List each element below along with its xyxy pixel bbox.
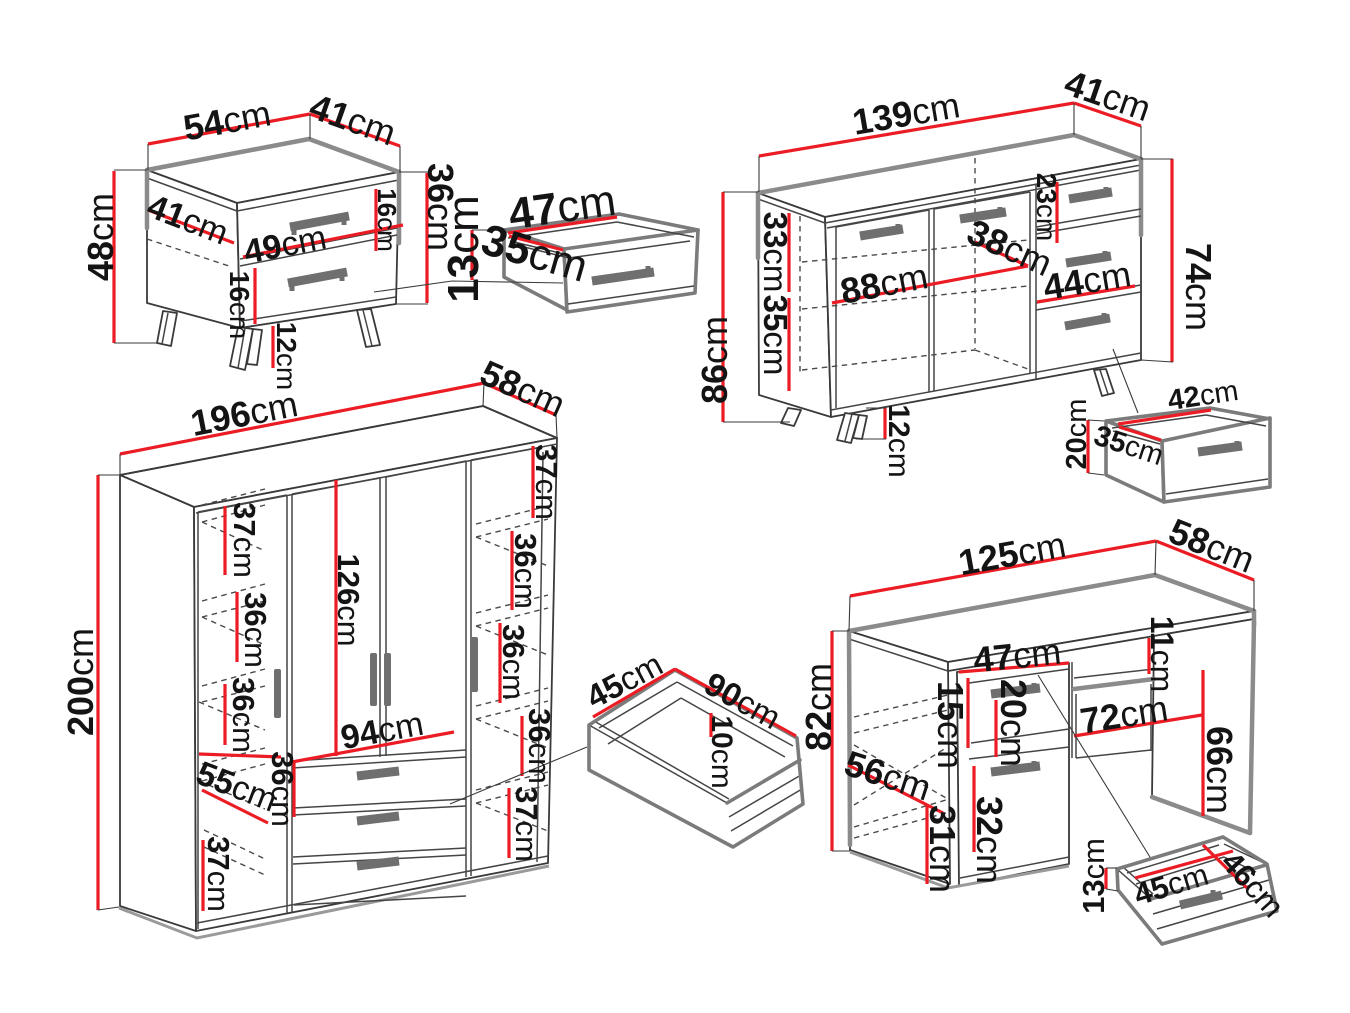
svg-text:36cm: 36cm [522,708,557,784]
svg-text:13cm: 13cm [1076,838,1111,914]
svg-text:16cm: 16cm [372,188,402,252]
svg-text:48cm: 48cm [80,193,121,281]
svg-text:37cm: 37cm [529,444,564,520]
svg-text:20cm: 20cm [993,679,1034,767]
svg-text:126cm: 126cm [331,553,366,646]
svg-text:35cm: 35cm [757,295,794,376]
svg-text:36cm: 36cm [238,592,273,668]
svg-text:86cm: 86cm [694,316,735,404]
svg-text:82cm: 82cm [798,663,839,751]
svg-text:66cm: 66cm [1199,726,1240,814]
svg-text:37cm: 37cm [201,836,236,912]
svg-text:200cm: 200cm [60,628,101,736]
svg-text:37cm: 37cm [509,786,544,862]
svg-text:10cm: 10cm [705,715,738,788]
svg-text:37cm: 37cm [227,502,262,578]
svg-text:11cm: 11cm [1144,616,1180,692]
svg-text:32cm: 32cm [969,796,1010,884]
svg-text:36cm: 36cm [496,624,531,700]
svg-text:23cm: 23cm [1031,173,1062,241]
svg-text:33cm: 33cm [757,212,794,293]
svg-text:36cm: 36cm [226,677,261,753]
svg-text:12cm: 12cm [882,404,915,477]
svg-text:74cm: 74cm [1178,243,1219,331]
svg-text:20cm: 20cm [1061,399,1093,470]
svg-text:31cm: 31cm [922,805,963,893]
svg-text:15cm: 15cm [930,681,971,769]
svg-text:12cm: 12cm [271,322,302,390]
svg-text:36cm: 36cm [508,533,543,609]
svg-text:16cm: 16cm [224,271,255,339]
svg-text:13cm: 13cm [439,195,488,303]
